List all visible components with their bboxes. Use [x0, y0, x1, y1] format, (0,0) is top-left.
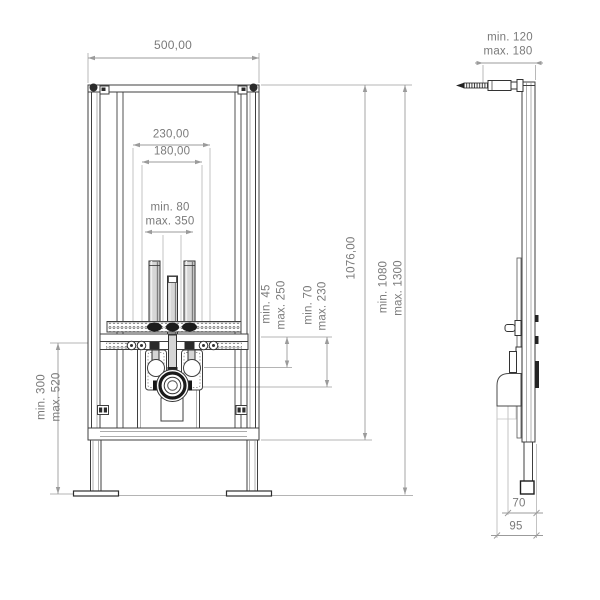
- installation-frame-technical-drawing: 500,00 230,00 180,00 min. 80 max. 350 mi…: [0, 0, 600, 600]
- side-profile: [522, 82, 539, 442]
- dim-drain-drop-min: min. 70: [303, 285, 315, 324]
- dim-leg-extension-max: max. 520: [51, 373, 63, 422]
- dim-fixing-width: 180,00: [154, 146, 190, 158]
- perforated-mounting-rail: [107, 322, 241, 333]
- frame-legs: [74, 440, 272, 496]
- dim-wall-projection-min: min. 120: [487, 32, 533, 44]
- dim-drain-drop-max: max. 230: [317, 282, 329, 331]
- drawing-linework: [0, 0, 600, 600]
- dim-fixing-drop-min: min. 45: [261, 284, 273, 323]
- dim-fixing-drop-max: max. 250: [276, 281, 288, 330]
- dim-rod-projection-max: max. 350: [146, 216, 195, 228]
- dim-rail-width: 230,00: [153, 129, 189, 141]
- side-leg-foot: [521, 442, 535, 494]
- side-view: [456, 80, 539, 495]
- wall-anchor-rod: [456, 80, 523, 92]
- dim-frame-height: 1076,00: [346, 237, 358, 280]
- dim-rod-projection-min: min. 80: [150, 202, 189, 214]
- dim-install-height-max: max. 1300: [393, 260, 405, 316]
- side-fixing-details: [505, 321, 522, 376]
- dim-drain-wall-offset: 70: [512, 498, 525, 510]
- dim-drain-pipe-offset: 95: [509, 521, 522, 533]
- dim-leg-extension-min: min. 300: [36, 374, 48, 420]
- dim-frame-width: 500,00: [154, 39, 192, 51]
- dim-install-height-min: min. 1080: [378, 261, 390, 313]
- dim-wall-projection-max: max. 180: [484, 46, 533, 58]
